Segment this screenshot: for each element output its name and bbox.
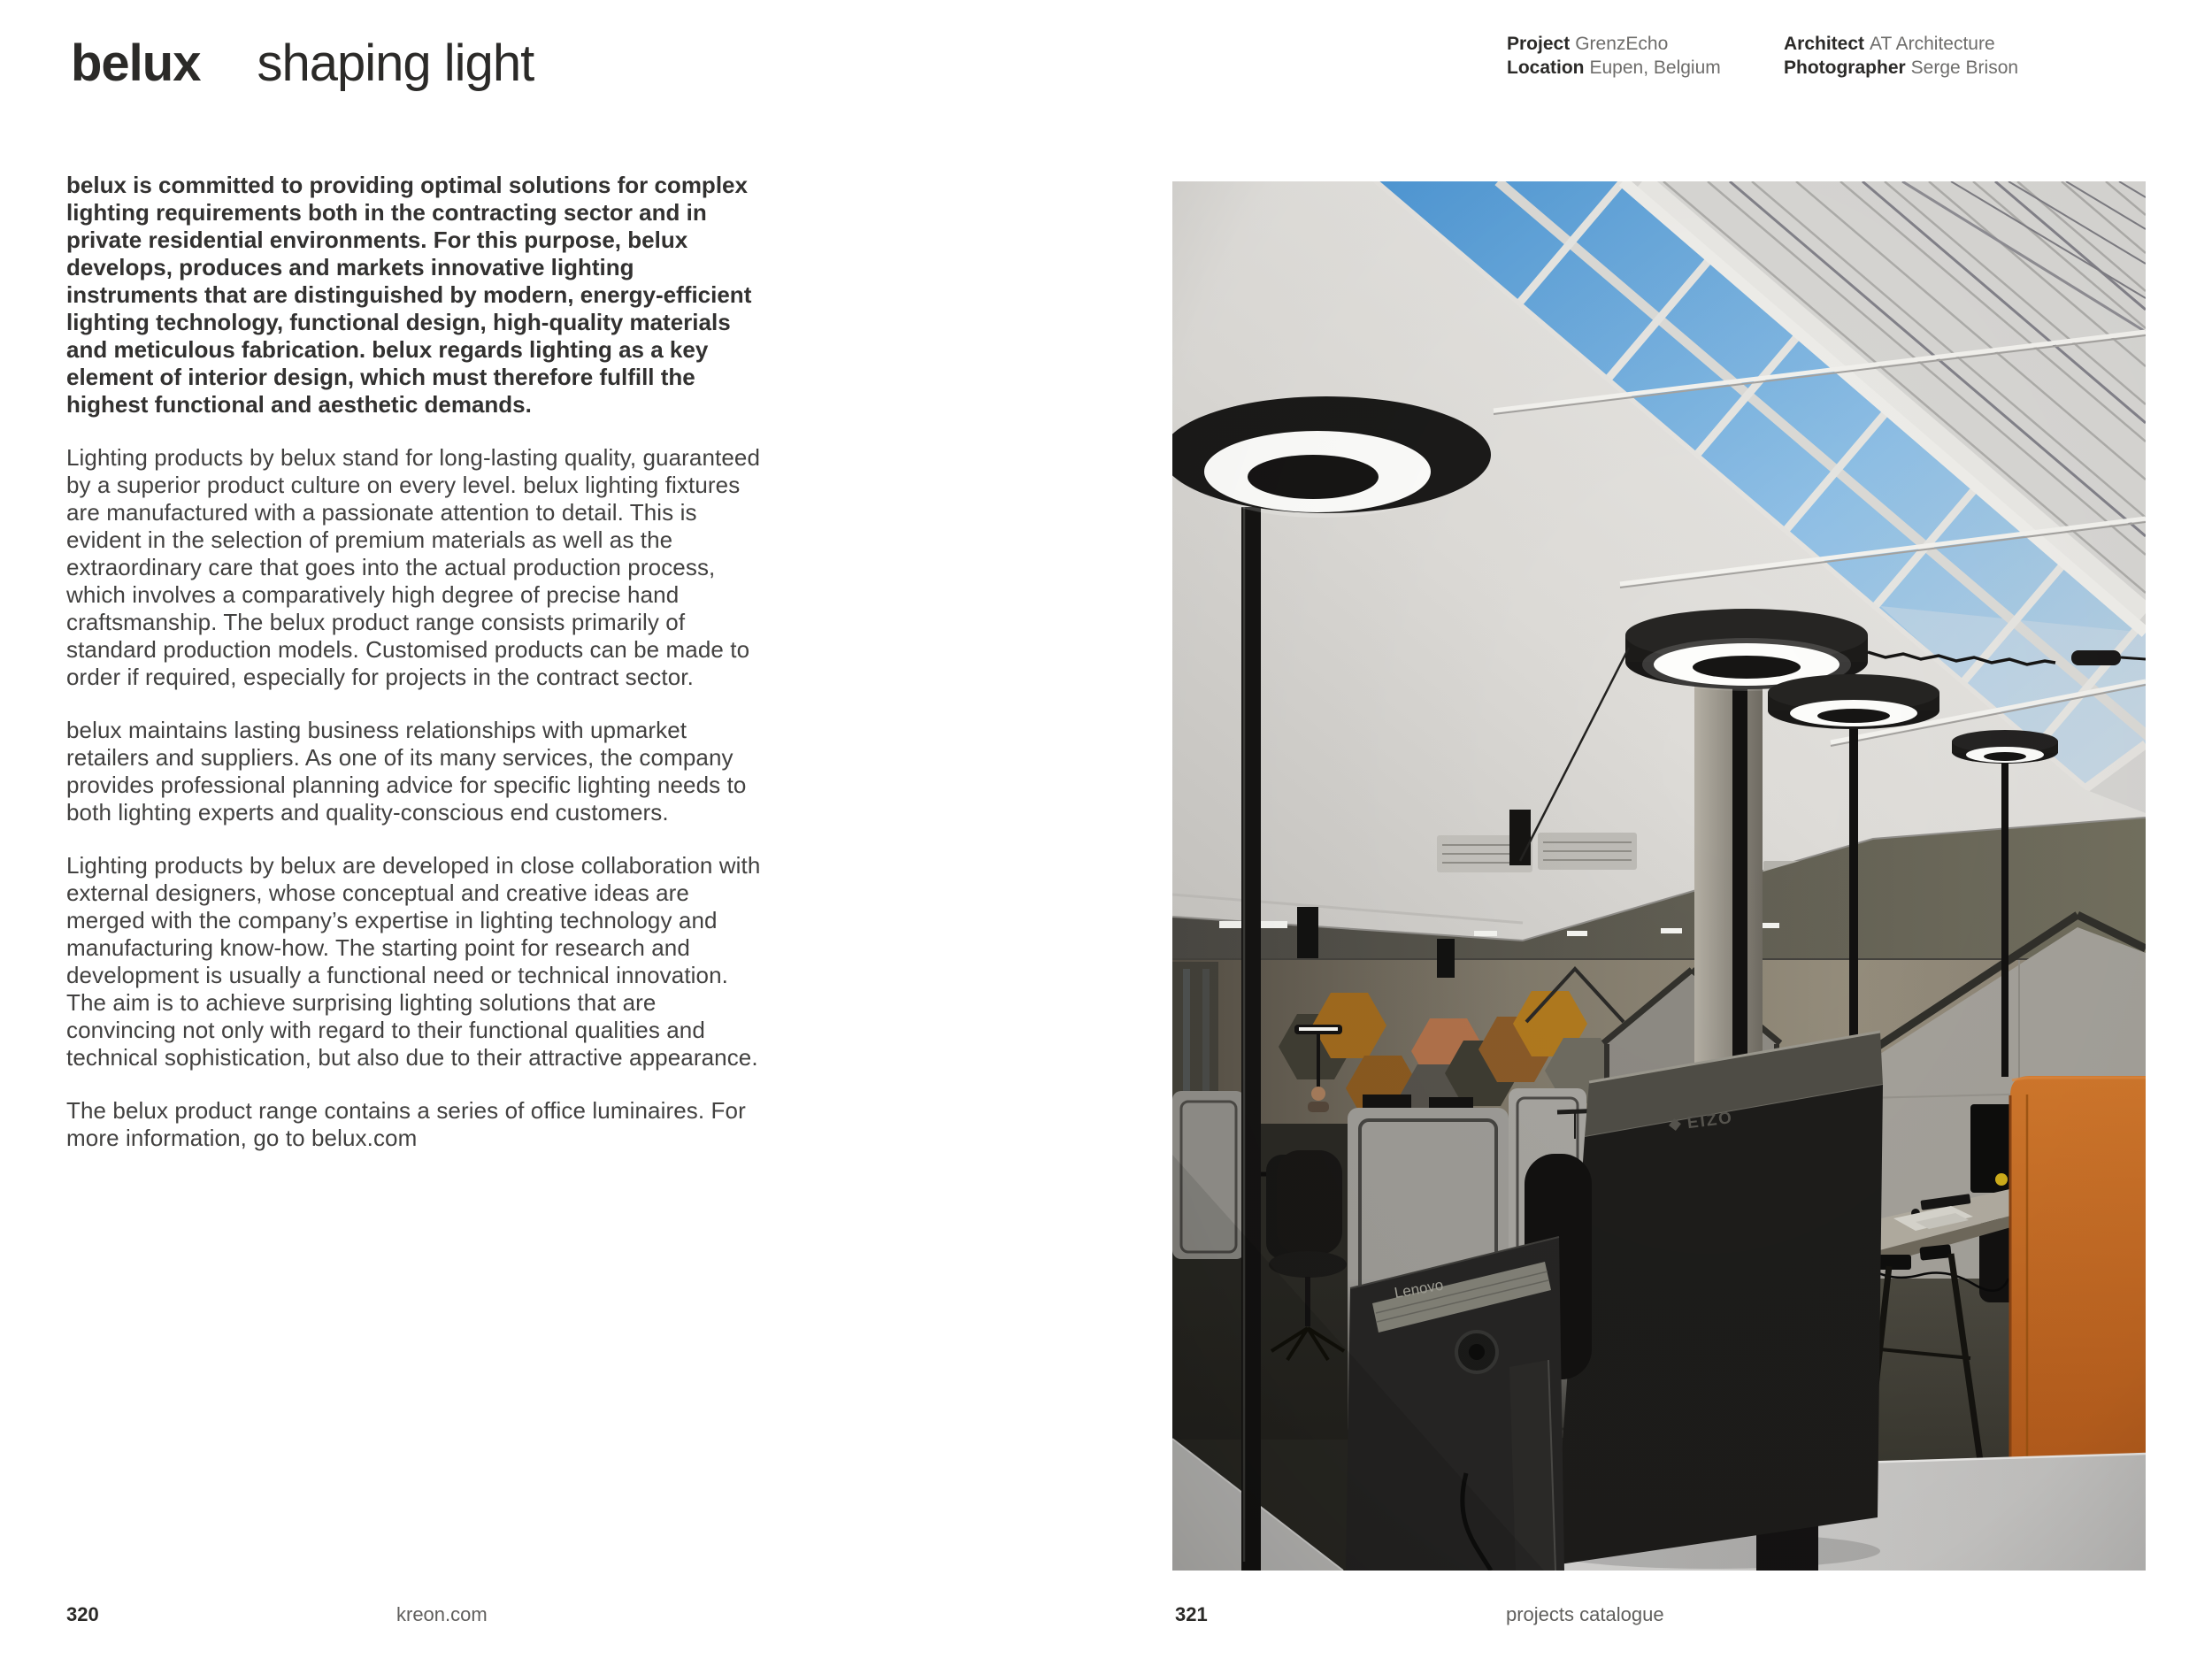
meta-value: GrenzEcho (1575, 34, 1668, 54)
project-meta-col-2: ArchitectAT Architecture PhotographerSer… (1784, 32, 2018, 80)
meta-label: Project (1507, 34, 1570, 54)
meta-label: Architect (1784, 34, 1864, 54)
page-title: belux shaping light (71, 34, 534, 93)
project-photo: EIZO Lenovo (1172, 181, 2146, 1571)
meta-value: Eupen, Belgium (1590, 58, 1721, 78)
footer-site: kreon.com (396, 1603, 488, 1626)
catalogue-spread: belux shaping light ProjectGrenzEcho Loc… (0, 0, 2212, 1659)
meta-row-location: LocationEupen, Belgium (1507, 56, 1721, 80)
office-interior-illustration: EIZO Lenovo (1172, 181, 2146, 1571)
brand-tagline: shaping light (257, 34, 534, 93)
footer-section-label: projects catalogue (1506, 1603, 1664, 1626)
meta-value: AT Architecture (1870, 34, 1995, 54)
brand-name: belux (71, 34, 201, 93)
meta-row-architect: ArchitectAT Architecture (1784, 32, 2018, 56)
paragraph-quality: Lighting products by belux stand for lon… (66, 444, 765, 691)
body-copy: belux is committed to providing optimal … (66, 172, 765, 1178)
meta-label: Location (1507, 58, 1585, 78)
paragraph-intro: belux is committed to providing optimal … (66, 172, 765, 419)
page-number-left: 320 (66, 1603, 99, 1626)
paragraph-designers: Lighting products by belux are developed… (66, 852, 765, 1071)
meta-row-project: ProjectGrenzEcho (1507, 32, 1721, 56)
project-meta-col-1: ProjectGrenzEcho LocationEupen, Belgium (1507, 32, 1721, 80)
paragraph-relationships: belux maintains lasting business relatio… (66, 717, 765, 826)
page-number-right: 321 (1175, 1603, 1208, 1626)
meta-row-photographer: PhotographerSerge Brison (1784, 56, 2018, 80)
meta-value: Serge Brison (1911, 58, 2018, 78)
paragraph-range: The belux product range contains a serie… (66, 1097, 765, 1152)
meta-label: Photographer (1784, 58, 1906, 78)
